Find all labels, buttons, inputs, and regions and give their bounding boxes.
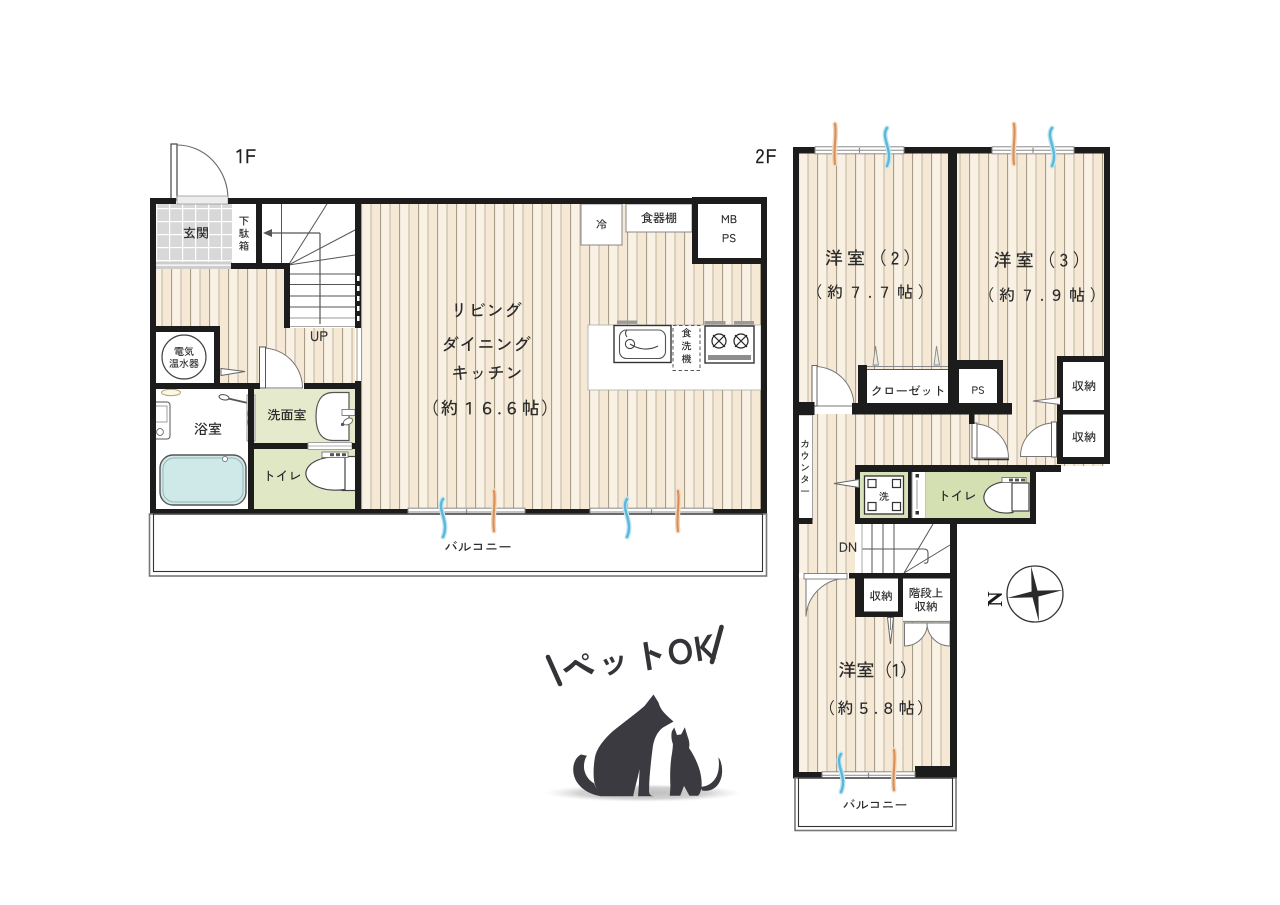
svg-text:N: N <box>983 591 1007 606</box>
